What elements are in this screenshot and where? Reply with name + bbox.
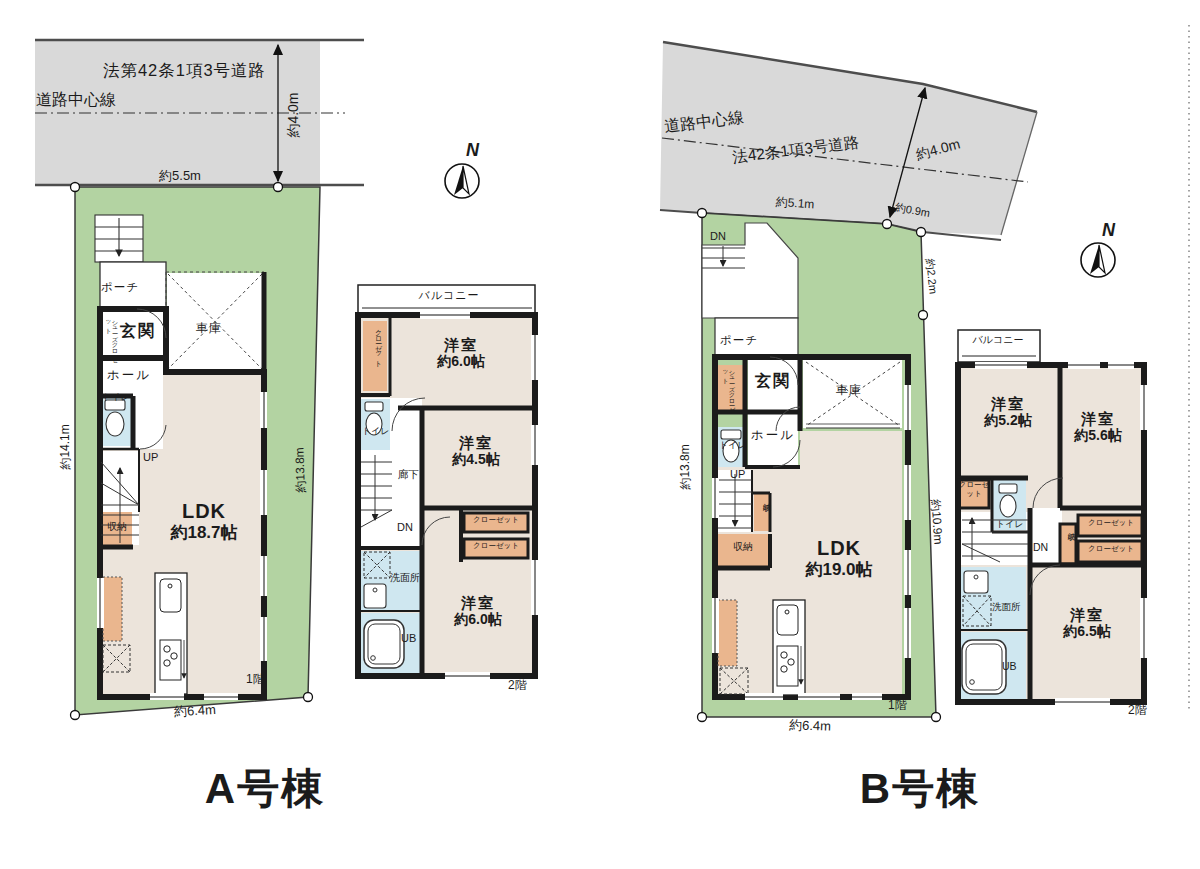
toilet-icon-b2 xyxy=(999,484,1017,517)
room1-size-b: 約5.2帖 xyxy=(954,412,1062,428)
counter-a xyxy=(103,577,122,641)
room-label-washroom-a: 洗面所 xyxy=(390,572,420,584)
room-label-room3-a: 洋室 約6.0帖 xyxy=(422,594,534,627)
room-label-bath-a: UB xyxy=(401,632,416,645)
exterior-stairs-a xyxy=(95,215,143,262)
ldk-title-a: LDK xyxy=(145,500,263,523)
road-centerline-label-a: 道路中心線 xyxy=(36,91,116,109)
compass-b-icon xyxy=(1081,243,1115,277)
room-label-garage-a: 車庫 xyxy=(196,322,222,336)
stairs-dn-ext-label-b: DN xyxy=(710,230,726,243)
house-b-1f xyxy=(712,357,911,700)
floor-label-1f-a: 1階 xyxy=(246,673,265,687)
bath-icon-b xyxy=(962,640,1006,694)
kitchen-b xyxy=(773,600,805,695)
floorplan-sheet: 法第42条1項3号道路 道路中心線 約4.0m 約5.5m 約14.1m 約13… xyxy=(0,0,1200,869)
room-label-closet-v-a: クローゼット xyxy=(367,324,382,390)
site-dim-left-b: 約13.8m xyxy=(679,432,693,502)
room3-size-b: 約6.5帖 xyxy=(1032,623,1142,639)
room-label-entrance-a: 玄関 xyxy=(120,322,156,340)
room3-title-b: 洋室 xyxy=(1032,606,1142,623)
room-label-toilet-b2: トイレ xyxy=(996,519,1024,529)
room1-size-a: 約6.0帖 xyxy=(405,353,517,369)
room-label-balcony-b: バルコニー xyxy=(962,334,1034,346)
site-dim-bottom-a: 約6.4m xyxy=(165,702,226,720)
room-label-washroom-b: 洗面所 xyxy=(992,602,1021,613)
closet2-label-a: クローゼット xyxy=(464,542,528,551)
room-label-storage-a: 収納 xyxy=(103,521,131,533)
room-label-hall-b: ホール xyxy=(747,428,799,442)
room2-size-a: 約4.5帖 xyxy=(420,451,532,467)
compass-n-label-a: N xyxy=(466,140,479,161)
road-width-label-a: 約4.0m xyxy=(285,80,301,150)
ldk-title-b: LDK xyxy=(780,537,898,560)
room-label-toilet-a2: トイレ xyxy=(362,426,390,436)
room-label-storage-b: 収納 xyxy=(728,541,758,553)
room-label-room2-b: 洋室 約5.6帖 xyxy=(1048,410,1148,443)
room1-title-a: 洋室 xyxy=(405,336,517,353)
stairs-dn-label-a: DN xyxy=(397,521,413,534)
room-label-garage-b: 車庫 xyxy=(836,384,862,398)
building-title-b: B号棟 xyxy=(820,765,1020,813)
room-label-room3-b: 洋室 約6.5帖 xyxy=(1032,606,1142,639)
room-label-shoes-closet-a: シューズクローゼット xyxy=(103,316,118,364)
room-label-hallway-a: 廊下 xyxy=(398,468,419,480)
room-label-ldk-a: LDK 約18.7帖 xyxy=(145,500,263,543)
room-label-porch-b: ポーチ xyxy=(720,334,758,347)
room-label-closet-b: クローゼット xyxy=(958,481,990,498)
room-label-toilet-b1: トイレ xyxy=(719,440,747,450)
room-label-entrance-b: 玄関 xyxy=(748,372,798,390)
road-law-label-a: 法第42条1項3号道路 xyxy=(92,61,277,80)
road-frontage-label-a: 約5.5m xyxy=(150,169,210,184)
room-label-bath-b: UB xyxy=(1002,660,1017,672)
plan-drawing xyxy=(0,0,1200,869)
room-label-room1-b: 洋室 約5.2帖 xyxy=(954,395,1062,428)
site-dim-right-a: 約13.8m xyxy=(293,435,309,505)
counter-b xyxy=(718,600,737,666)
room3-title-a: 洋室 xyxy=(422,594,534,611)
room-label-toilet-a1: トイレ xyxy=(102,392,130,402)
building-title-a: A号棟 xyxy=(165,765,365,813)
site-dim-bottom-b: 約6.4m xyxy=(780,718,840,735)
closet1-label-b: クローゼット xyxy=(1080,519,1142,528)
room-label-room1-a: 洋室 約6.0帖 xyxy=(405,336,517,369)
room-label-ldk-b: LDK 約19.0帖 xyxy=(780,537,898,580)
compass-n-label-b: N xyxy=(1102,220,1115,241)
room-label-hall-a: ホール xyxy=(107,368,151,382)
bath-icon-a xyxy=(364,620,404,668)
room2-title-a: 洋室 xyxy=(420,434,532,451)
room2-title-b: 洋室 xyxy=(1048,410,1148,427)
room-label-storage-v-b: 収納 xyxy=(1062,527,1075,563)
room1-title-b: 洋室 xyxy=(954,395,1062,412)
closet1-label-a: クローゼット xyxy=(464,516,528,525)
room-label-shoes-closet-b: シューズクローゼット xyxy=(720,366,735,412)
toilet-icon-a1 xyxy=(105,400,125,436)
kitchen-a xyxy=(155,573,187,694)
room-label-room2-a: 洋室 約4.5帖 xyxy=(420,434,532,467)
room3-size-a: 約6.0帖 xyxy=(422,611,534,627)
floor-label-1f-b: 1階 xyxy=(888,699,907,713)
closet2-label-b: クローゼット xyxy=(1080,545,1142,554)
stairs-dn-label-b: DN xyxy=(1033,541,1048,553)
stairs-up-label-b: UP xyxy=(730,468,745,481)
site-dim-left-a: 約14.1m xyxy=(59,412,73,482)
stairs-up-label-a: UP xyxy=(143,451,158,464)
room-label-balcony-a: バルコニー xyxy=(395,289,503,302)
ldk-size-b: 約19.0帖 xyxy=(780,560,898,580)
ldk-size-a: 約18.7帖 xyxy=(145,523,263,543)
room-label-porch-a: ポーチ xyxy=(101,281,139,294)
floor-label-2f-b: 2階 xyxy=(1128,704,1147,718)
room-label-storage-small-b: 収納 xyxy=(756,497,770,529)
floor-label-2f-a: 2階 xyxy=(508,679,527,693)
room2-size-b: 約5.6帖 xyxy=(1048,427,1148,443)
compass-a-icon xyxy=(445,164,479,198)
